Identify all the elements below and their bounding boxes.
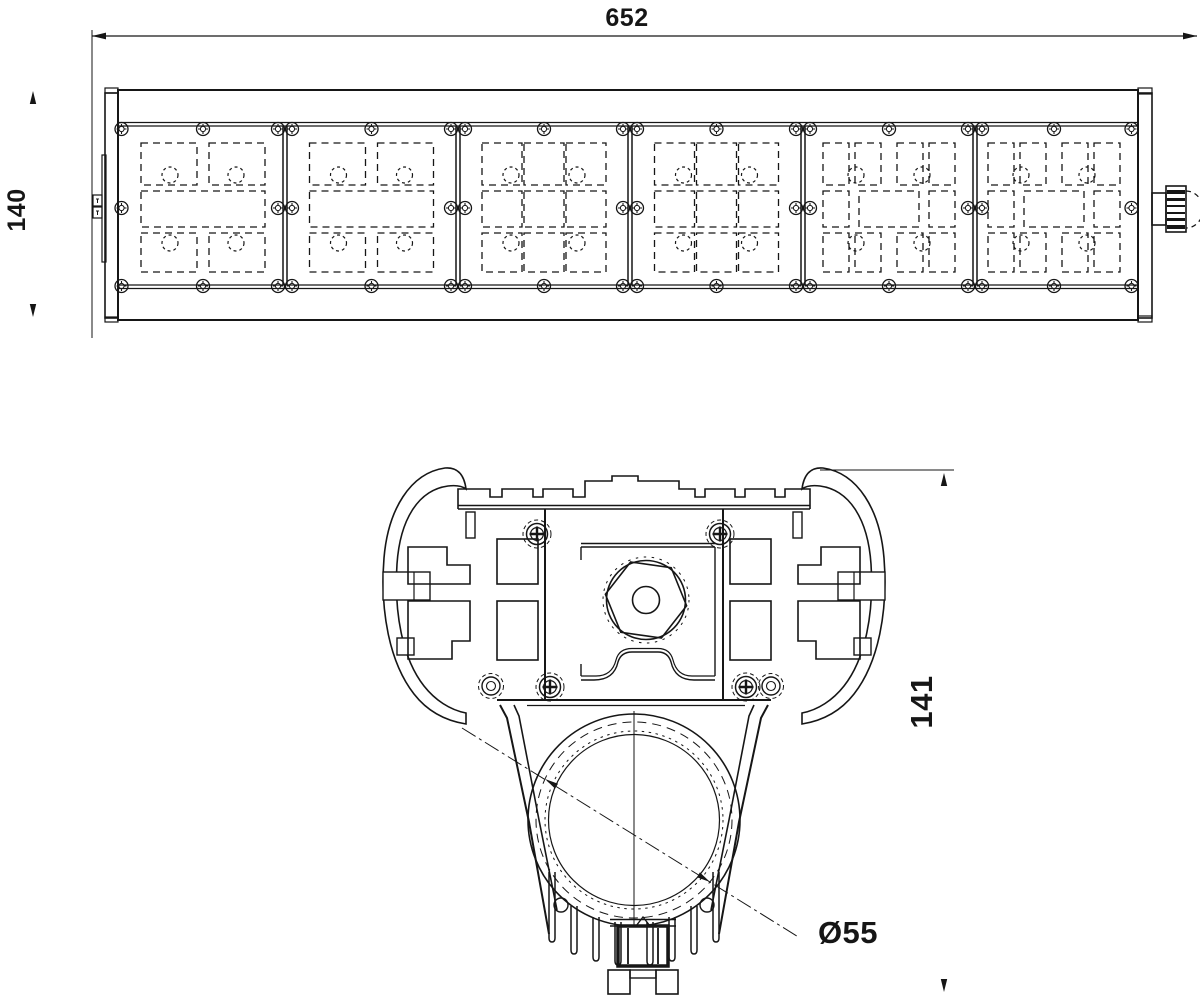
screw-icon (459, 123, 472, 136)
screw-icon (272, 280, 285, 293)
lens-diameter-text: Ø55 (818, 915, 878, 950)
screw-icon (445, 280, 458, 293)
led-module (310, 143, 434, 272)
phillips-screw-icon (536, 673, 564, 701)
fixture-housing (93, 88, 1200, 322)
screw-icon (1125, 123, 1138, 136)
screw-icon (459, 280, 472, 293)
mounting-rail (458, 476, 810, 509)
screw-icon (962, 280, 975, 293)
dimension-height-141 (820, 470, 954, 992)
screw-icon (286, 202, 299, 215)
top-view (30, 30, 1200, 338)
screw-icon (883, 280, 896, 293)
phillips-screw-icon (732, 673, 760, 701)
screw-icon (710, 123, 723, 136)
screw-icon (962, 123, 975, 136)
screw-icon (976, 123, 989, 136)
dimension-length-652 (92, 30, 1197, 338)
screw-icon (710, 280, 723, 293)
technical-drawing-page: 652 140 141 Ø55 (0, 0, 1200, 996)
screw-icon (790, 123, 803, 136)
screw-icon (883, 123, 896, 136)
led-module (988, 143, 1120, 272)
led-module (141, 143, 265, 272)
screw-icon (197, 123, 210, 136)
height-dim-text-141: 141 (904, 675, 939, 728)
screw-icon (631, 280, 644, 293)
terminal-box (608, 917, 678, 994)
height-dim-text-140: 140 (3, 188, 31, 231)
screw-icon (1125, 280, 1138, 293)
screw-icon (804, 123, 817, 136)
bolt-hole-icon (759, 674, 784, 699)
screw-icon (1048, 280, 1061, 293)
screw-icon (445, 202, 458, 215)
screw-icon (365, 280, 378, 293)
screw-icon (962, 202, 975, 215)
rating-label-plate (93, 195, 102, 218)
diameter-leader-line (462, 728, 800, 938)
screw-icon (197, 280, 210, 293)
screw-icon (445, 123, 458, 136)
led-module (482, 143, 606, 272)
screw-icon (804, 280, 817, 293)
cable-gland (1152, 186, 1200, 232)
screw-icon (459, 202, 472, 215)
screw-icon (617, 202, 630, 215)
led-module (823, 143, 955, 272)
end-cap-left (93, 88, 118, 322)
drawing-svg: 652 140 141 Ø55 (0, 0, 1200, 996)
screw-icon (538, 123, 551, 136)
end-cap-right (1138, 88, 1152, 322)
length-dim-text: 652 (605, 4, 648, 32)
screw-icon (976, 202, 989, 215)
screw-icon (631, 202, 644, 215)
screw-icon (115, 280, 128, 293)
screw-icon (1048, 123, 1061, 136)
bolt-hole-icon (479, 674, 504, 699)
screw-icon (286, 280, 299, 293)
screw-icon (790, 280, 803, 293)
top-view-screws (115, 123, 1138, 293)
screw-icon (804, 202, 817, 215)
screw-icon (617, 123, 630, 136)
screw-icon (538, 280, 551, 293)
led-module (655, 143, 779, 272)
phillips-screw-icon (523, 520, 551, 548)
module-separators (283, 126, 977, 285)
screw-icon (976, 280, 989, 293)
screw-icon (272, 202, 285, 215)
screw-icon (286, 123, 299, 136)
screw-icon (272, 123, 285, 136)
screw-icon (115, 123, 128, 136)
screw-icon (1125, 202, 1138, 215)
screw-icon (617, 280, 630, 293)
heatsink-ear-right (730, 468, 885, 724)
screw-icon (115, 202, 128, 215)
screw-icon (790, 202, 803, 215)
screw-icon (631, 123, 644, 136)
heatsink-ear-left (383, 468, 538, 724)
screw-icon (365, 123, 378, 136)
hex-nut (603, 557, 689, 643)
